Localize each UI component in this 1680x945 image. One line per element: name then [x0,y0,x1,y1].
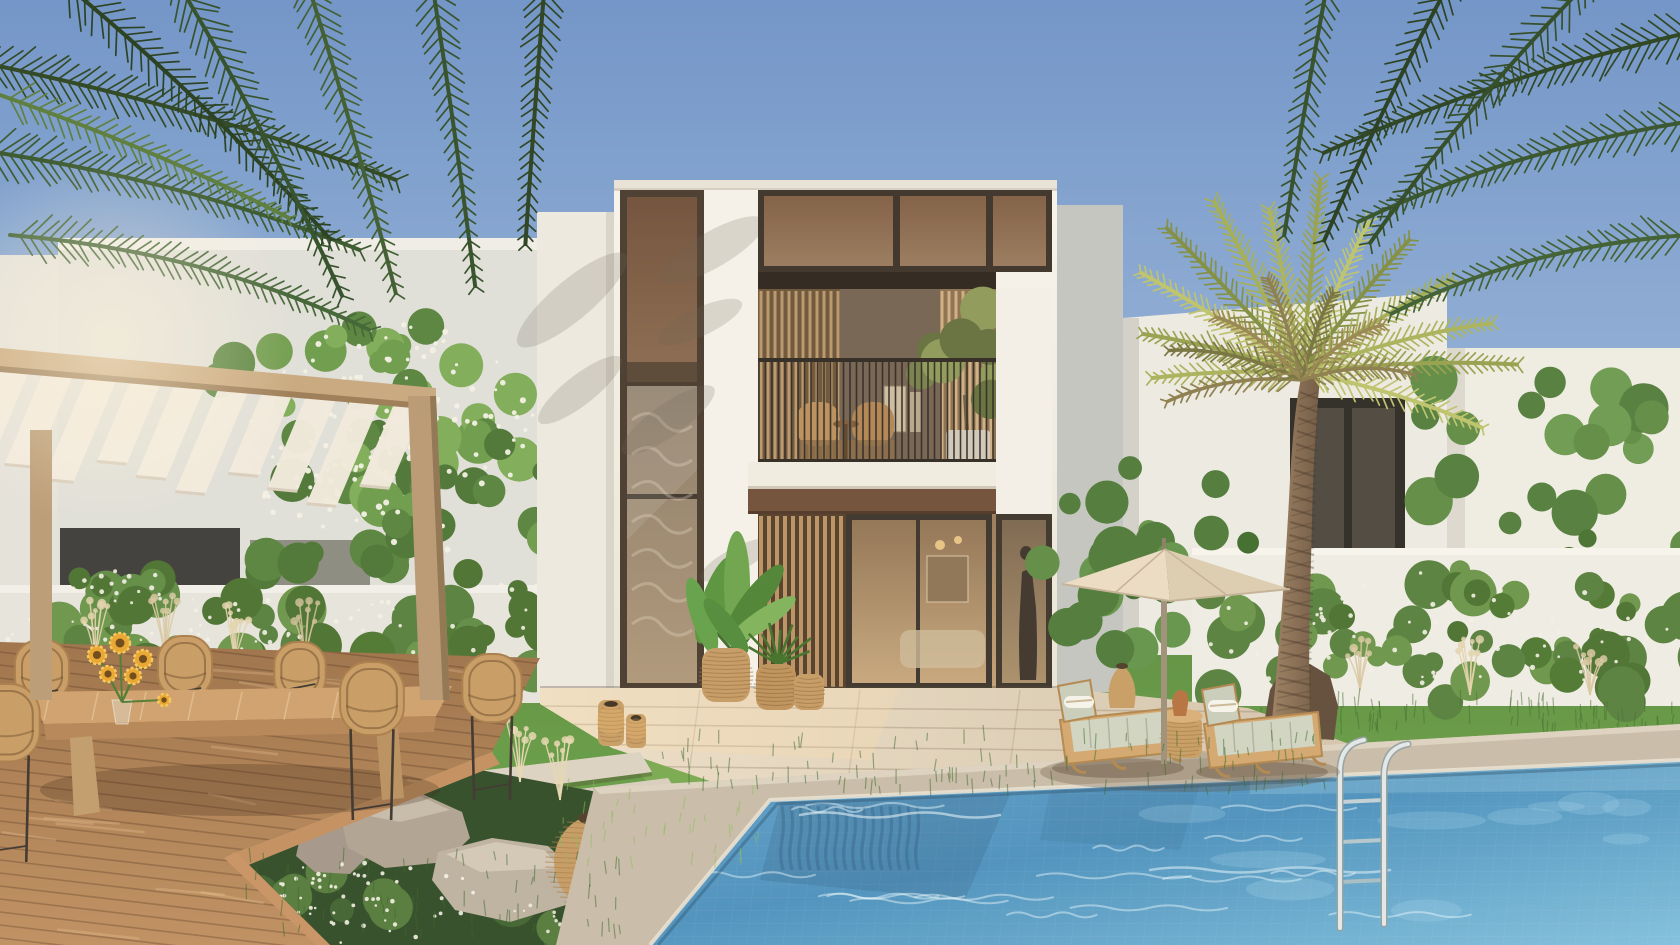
warm-light-wash [0,0,1680,945]
villa-exterior-render [0,0,1680,945]
scene-canvas [0,0,1680,945]
